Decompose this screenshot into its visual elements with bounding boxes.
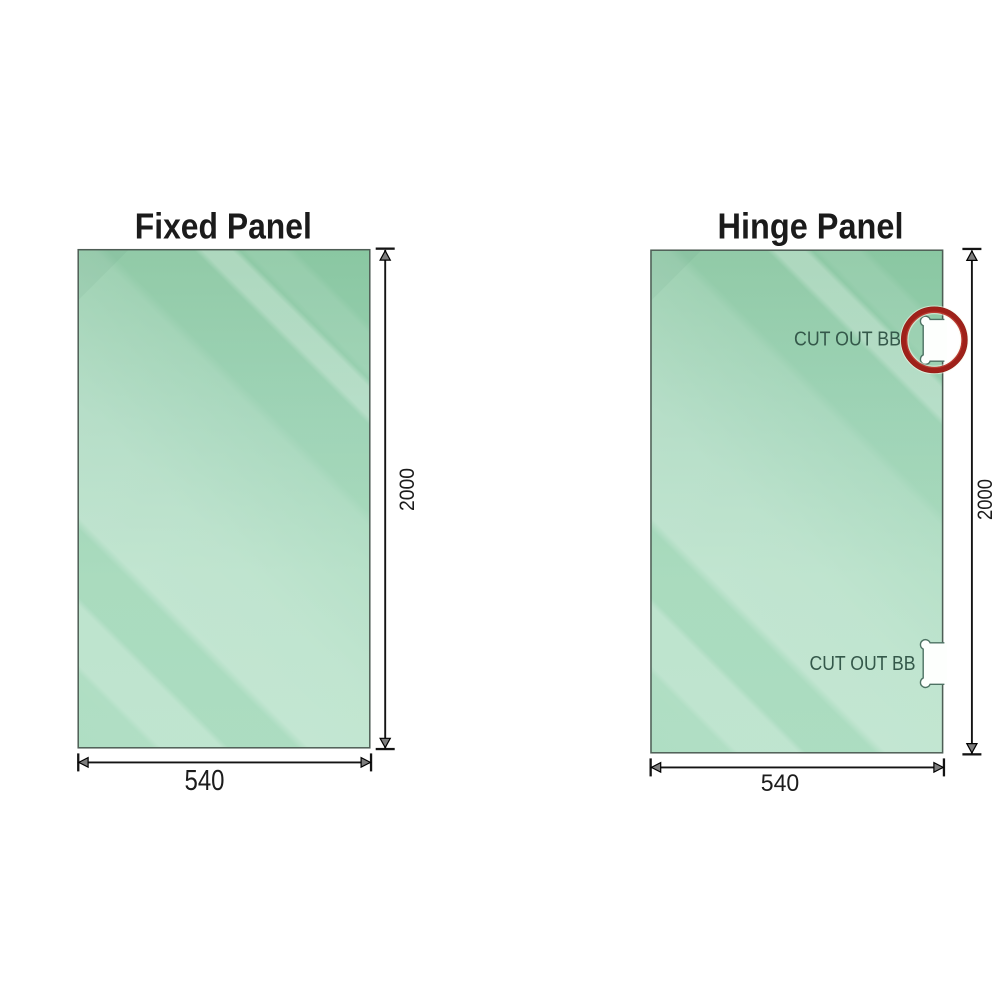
svg-text:540: 540 xyxy=(185,765,225,797)
svg-text:CUT OUT BB: CUT OUT BB xyxy=(794,329,901,351)
svg-text:Fixed Panel: Fixed Panel xyxy=(135,206,312,247)
svg-text:2000: 2000 xyxy=(396,468,419,511)
svg-text:Hinge Panel: Hinge Panel xyxy=(718,206,904,247)
svg-text:CUT OUT BB: CUT OUT BB xyxy=(810,653,916,675)
svg-text:2000: 2000 xyxy=(974,479,997,520)
svg-text:540: 540 xyxy=(761,770,800,797)
